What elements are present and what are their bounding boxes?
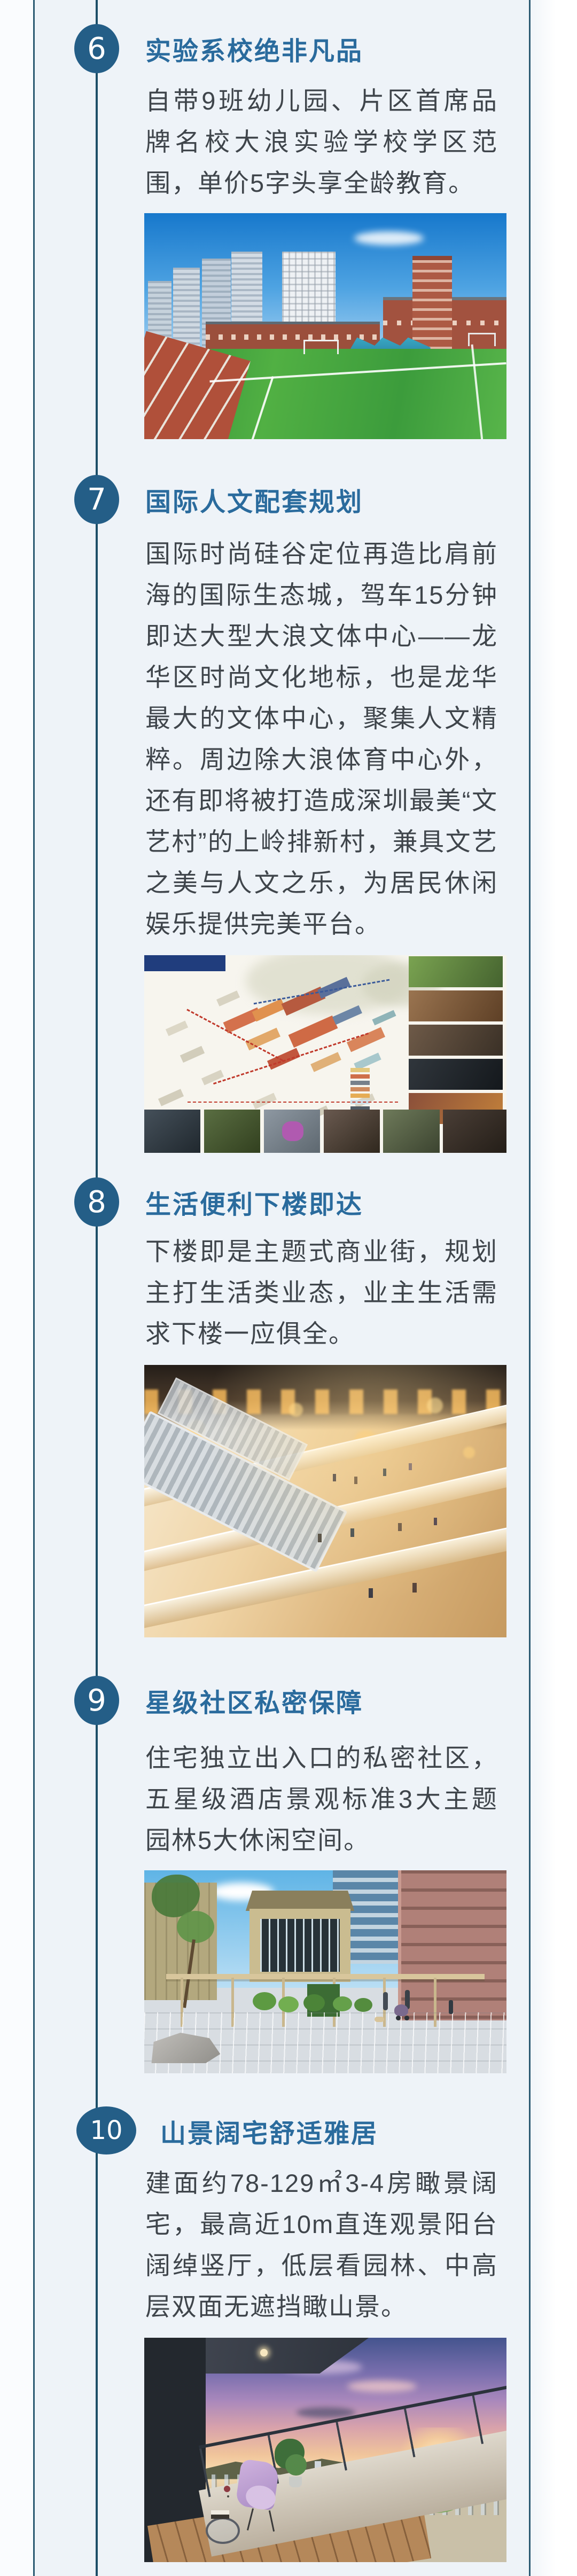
cloud xyxy=(347,2380,417,2392)
map-photo-thumb xyxy=(324,1110,380,1153)
section-8-body: 下楼即是主题式商业街，规划主打生活类业态，业主生活需求下楼一应俱全。 xyxy=(145,1231,498,1354)
map-block-gray xyxy=(216,990,240,1006)
section-9-header: 9 星级社区私密保障 xyxy=(0,1676,577,1725)
section-10-title: 山景阔宅舒适雅居 xyxy=(160,2106,378,2156)
community-courtyard-photo[interactable] xyxy=(144,1870,506,2073)
tree-canopy xyxy=(177,1911,214,1943)
school-sports-field-photo[interactable] xyxy=(144,213,506,439)
legend-swatch xyxy=(350,1074,370,1079)
culture-village-masterplan-photo[interactable] xyxy=(144,955,506,1153)
warm-light-overlay xyxy=(144,1365,506,1637)
stroller-wheel xyxy=(396,2016,401,2020)
step-badge-7: 7 xyxy=(74,475,119,524)
section-6-title: 实验系校绝非凡品 xyxy=(145,24,363,73)
map-photo-thumb xyxy=(144,1110,200,1153)
map-photo-thumb xyxy=(383,1110,439,1153)
legend-swatch xyxy=(350,1087,370,1091)
bush xyxy=(278,1996,299,2012)
section-9-body: 住宅独立出入口的私密社区，五星级酒店景观标准3大主题园林5大休闲空间。 xyxy=(145,1737,498,1861)
cloud xyxy=(354,231,424,245)
step-badge-8: 8 xyxy=(74,1177,119,1227)
map-title-block xyxy=(144,955,225,971)
section-7-body: 国际时尚硅谷定位再造比肩前海的国际生态城，驾车15分钟即达大型大浪文体中心——龙… xyxy=(145,533,498,944)
bush xyxy=(253,1992,276,2010)
section-7-header: 7 国际人文配套规划 xyxy=(0,475,577,524)
step-badge-6: 6 xyxy=(74,24,119,73)
map-block-color xyxy=(372,1010,396,1026)
map-block-color xyxy=(245,1028,280,1050)
section-8-header: 8 生活便利下楼即达 xyxy=(0,1177,577,1227)
pavilion-glass xyxy=(260,1919,340,1972)
child-figure xyxy=(449,2000,453,2014)
map-photo-thumb xyxy=(409,1025,503,1056)
goal-frame xyxy=(303,340,339,354)
step-badge-10: 10 xyxy=(76,2106,136,2155)
map-block-color xyxy=(267,1048,300,1070)
map-photo-thumb xyxy=(204,1110,260,1153)
map-block-color xyxy=(310,1052,341,1072)
section-7: 7 国际人文配套规划 国际时尚硅谷定位再造比肩前海的国际生态城，驾车15分钟即达… xyxy=(0,475,577,1153)
pink-residential-building xyxy=(398,1870,506,2020)
residential-tower xyxy=(173,268,200,350)
section-6: 6 实验系校绝非凡品 自带9班幼儿园、片区首席品牌名校大浪实验学校学区范围，单价… xyxy=(0,24,577,439)
section-10-header: 10 山景阔宅舒适雅居 xyxy=(0,2106,577,2156)
map-block-color xyxy=(288,1015,338,1047)
goal-frame xyxy=(468,333,496,346)
books-stack xyxy=(211,2510,229,2515)
map-photo-thumb-accent xyxy=(282,1121,304,1141)
map-photo-thumb xyxy=(409,956,503,987)
pergola-beam xyxy=(166,1974,485,1979)
plant-pot xyxy=(289,2477,302,2487)
map-block-color xyxy=(347,1027,385,1052)
section-8: 8 生活便利下楼即达 下楼即是主题式商业街，规划主打生活类业态，业主生活需求下楼… xyxy=(0,1177,577,1637)
section-7-title: 国际人文配套规划 xyxy=(145,475,363,524)
shopping-mall-interior-photo[interactable] xyxy=(144,1365,506,1637)
article-page: 6 实验系校绝非凡品 自带9班幼儿园、片区首席品牌名校大浪实验学校学区范围，单价… xyxy=(0,0,577,2576)
map-photo-thumb xyxy=(409,1059,503,1090)
section-9-title: 星级社区私密保障 xyxy=(145,1676,363,1725)
step-number: 9 xyxy=(87,1683,106,1718)
route-dashed-red xyxy=(188,1102,397,1103)
map-block-gray xyxy=(158,1089,184,1106)
section-6-body: 自带9班幼儿园、片区首席品牌名校大浪实验学校学区范围，单价5字头享全龄教育。 xyxy=(145,80,498,204)
map-block-gray xyxy=(166,1020,188,1036)
map-photo-thumb xyxy=(443,1110,506,1153)
balcony-mountain-view-photo[interactable] xyxy=(144,2338,506,2562)
bush xyxy=(333,1996,352,2011)
legend-swatch xyxy=(350,1068,370,1072)
step-number: 6 xyxy=(87,32,106,66)
section-6-header: 6 实验系校绝非凡品 xyxy=(0,24,577,73)
section-10: 10 山景阔宅舒适雅居 建面约78-129㎡3-4房瞰景阔宅，最高近10m直连观… xyxy=(0,2106,577,2562)
section-9: 9 星级社区私密保障 住宅独立出入口的私密社区，五星级酒店景观标准3大主题园林5… xyxy=(0,1676,577,2073)
step-number: 8 xyxy=(87,1185,106,1220)
map-block-gray xyxy=(180,1045,205,1063)
pavilion-roof xyxy=(246,1891,354,1911)
step-number: 10 xyxy=(90,2116,122,2145)
stroller-wheel xyxy=(404,2016,409,2020)
legend-swatch xyxy=(350,1081,370,1085)
step-badge-9: 9 xyxy=(74,1676,119,1725)
bush xyxy=(303,1994,325,2011)
bush xyxy=(354,1998,372,2012)
stroller xyxy=(394,2004,408,2016)
map-photo-thumb xyxy=(409,990,503,1021)
dog xyxy=(375,2017,384,2022)
section-10-body: 建面约78-129㎡3-4房瞰景阔宅，最高近10m直连观景阳台阔绰竖厅，低层看园… xyxy=(145,2163,498,2327)
resident-figure xyxy=(383,1992,388,2010)
ceiling-downlight xyxy=(260,2349,268,2356)
section-8-title: 生活便利下楼即达 xyxy=(145,1177,363,1227)
step-number: 7 xyxy=(87,482,106,517)
legend-swatch xyxy=(350,1094,370,1098)
side-table xyxy=(206,2517,240,2544)
